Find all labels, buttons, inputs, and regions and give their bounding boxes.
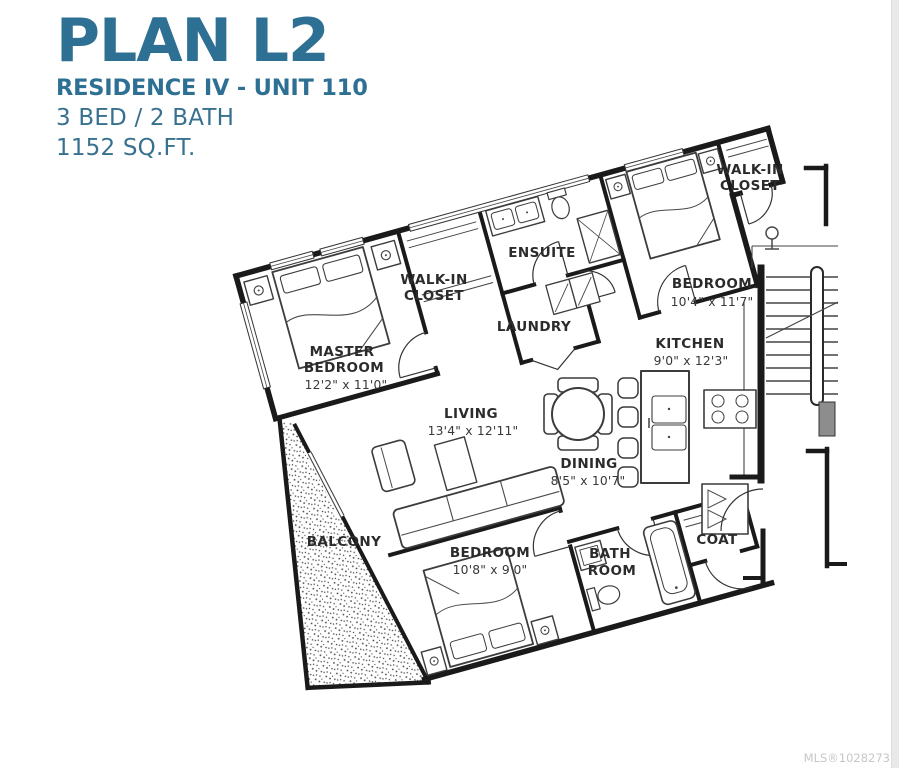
- stairs: [752, 246, 838, 405]
- stove: [704, 390, 756, 428]
- label-walkin2-1: WALK-IN: [716, 162, 783, 178]
- master-door-arc: [390, 332, 436, 378]
- laundry-bifold-door: [531, 348, 580, 376]
- dims-dining: 8'5" x 10'7": [551, 474, 626, 488]
- bar-stool: [618, 378, 638, 398]
- label-master-bedroom-2: BEDROOM: [304, 360, 384, 376]
- label-walkin2-2: CLOSET: [720, 178, 780, 194]
- kitchen-island-group: [618, 371, 689, 487]
- dims-kitchen: 9'0" x 12'3": [654, 354, 729, 368]
- sofa: [392, 466, 565, 549]
- armchair: [371, 439, 416, 492]
- label-laundry: LAUNDRY: [497, 319, 571, 335]
- label-walkin-master-2: CLOSET: [404, 288, 464, 304]
- label-dining: DINING: [560, 456, 617, 472]
- dims-master-bedroom: 12'2" x 11'0": [305, 378, 388, 392]
- label-coat: COAT: [696, 532, 738, 548]
- label-bedroom2: BEDROOM: [672, 276, 752, 292]
- stair-rail: [811, 267, 823, 405]
- ensuite-fixtures: [485, 178, 620, 286]
- label-master-bedroom-1: MASTER: [310, 344, 375, 360]
- bar-stool: [618, 438, 638, 458]
- walkin2-rails: [726, 139, 768, 157]
- label-living: LIVING: [444, 406, 498, 422]
- fridge: [702, 484, 748, 534]
- dims-bedroom3: 10'8" x 9'0": [453, 563, 528, 577]
- label-walkin-master-1: WALK-IN: [400, 272, 467, 288]
- label-balcony: BALCONY: [307, 534, 382, 550]
- floorplan-page: PLAN L2 RESIDENCE IV - UNIT 110 3 BED / …: [0, 0, 899, 768]
- label-bathroom-1: BATH: [589, 546, 631, 562]
- laundry-appliances: [546, 273, 600, 315]
- elevator-shaft: [819, 402, 835, 436]
- label-bedroom3: BEDROOM: [450, 545, 530, 561]
- label-kitchen: KITCHEN: [655, 336, 724, 352]
- window-master-left: [240, 302, 270, 389]
- mls-number: MLS®1028273: [804, 751, 890, 765]
- label-bathroom-2: ROOM: [588, 563, 636, 579]
- dining-set: [544, 378, 612, 450]
- dims-living: 13'4" x 12'11": [428, 424, 519, 438]
- dining-table: [552, 388, 604, 440]
- label-ensuite: ENSUITE: [508, 245, 575, 261]
- page-edge-band: [891, 0, 899, 768]
- dims-bedroom2: 10'4" x 11'7": [671, 295, 754, 309]
- bar-stool: [618, 407, 638, 427]
- floor-plan-svg: MASTER BEDROOM 12'2" x 11'0" WALK-IN CLO…: [0, 0, 899, 768]
- coffee-table: [434, 437, 476, 491]
- unit-rotated-group: [196, 125, 887, 714]
